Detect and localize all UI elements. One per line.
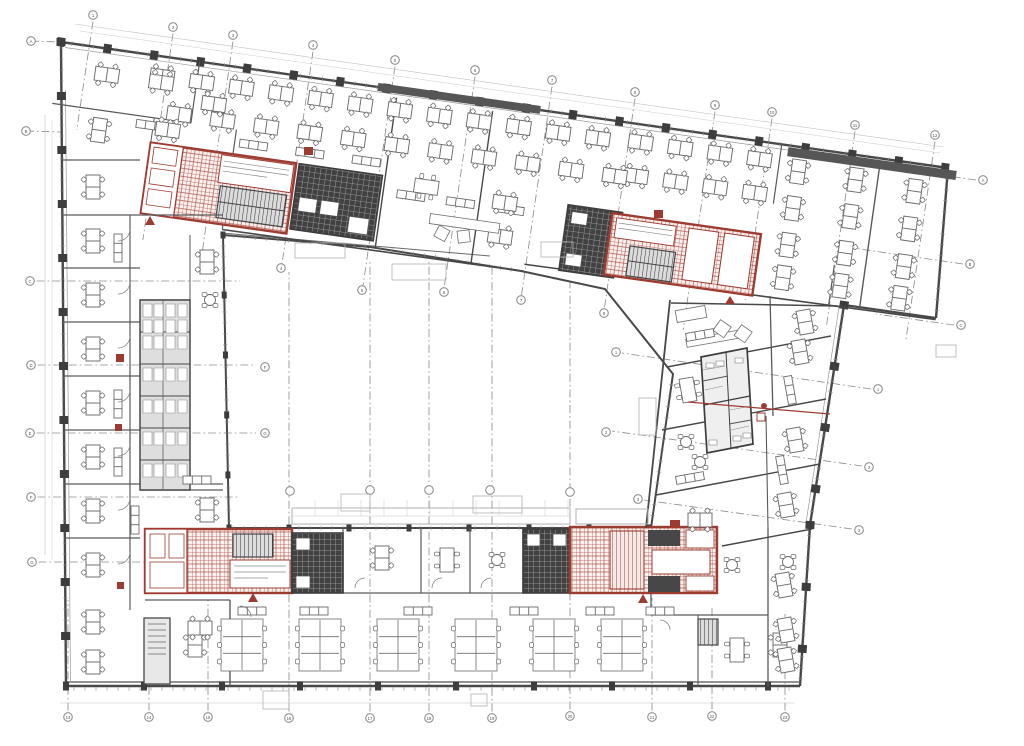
svg-text:B: B: [25, 129, 28, 134]
svg-text:18: 18: [427, 716, 432, 721]
svg-text:C: C: [959, 323, 962, 328]
svg-text:16: 16: [287, 716, 292, 721]
svg-text:23: 23: [783, 715, 788, 720]
svg-text:19: 19: [490, 716, 495, 721]
svg-text:A: A: [30, 39, 33, 44]
svg-text:12: 12: [933, 133, 938, 138]
svg-text:14: 14: [147, 715, 152, 720]
svg-text:F: F: [264, 365, 267, 370]
svg-text:15: 15: [206, 715, 211, 720]
svg-text:E: E: [29, 431, 32, 436]
svg-text:C: C: [28, 279, 31, 284]
svg-text:G: G: [30, 560, 33, 565]
svg-text:D: D: [29, 363, 32, 368]
svg-text:G: G: [263, 431, 266, 436]
svg-text:20: 20: [568, 714, 573, 719]
svg-text:13: 13: [66, 715, 71, 720]
svg-text:11: 11: [853, 123, 858, 128]
svg-text:21: 21: [650, 715, 655, 720]
svg-text:A: A: [982, 178, 985, 183]
svg-text:B: B: [969, 262, 972, 267]
svg-text:F: F: [30, 495, 33, 500]
svg-text:22: 22: [710, 714, 715, 719]
svg-text:17: 17: [368, 716, 373, 721]
svg-text:10: 10: [770, 110, 775, 115]
